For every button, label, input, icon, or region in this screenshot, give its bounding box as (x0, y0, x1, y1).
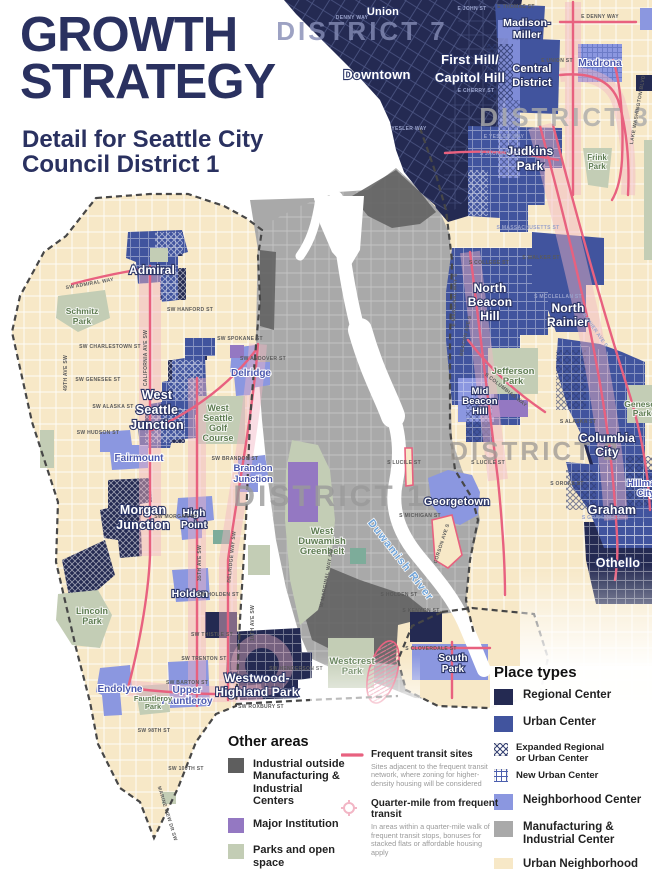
riverview-playfield (248, 545, 270, 575)
first-hill-label-2: Capitol Hill (435, 70, 505, 85)
street-label: SW ALASKA ST (92, 404, 133, 410)
street-label: S KENYON ST (402, 608, 439, 614)
street-label: SW MORGAN ST (154, 514, 198, 520)
street-label: S ALASKA ST (560, 419, 596, 425)
street-label: SW 98TH ST (138, 728, 170, 734)
street-label: DENNY WAY (336, 15, 369, 21)
major-institution-swatch (228, 818, 244, 833)
street-label: E JOHN ST (457, 6, 486, 12)
transit-legend: Frequent transit sites Sites adjacent to… (341, 749, 499, 867)
morgan-label-2: Junction (116, 518, 170, 532)
street-label: S LUCILE ST (387, 460, 421, 466)
fauntleroy-park-label-2: Park (145, 702, 162, 711)
madrona-label: Madrona (578, 57, 622, 69)
street-label: S MASSACHUSETTS ST (497, 225, 560, 231)
quarter-mile-icon (341, 800, 365, 816)
street-label: SW TRENTON ST (181, 656, 226, 662)
brandon-label-2: Junction (233, 474, 273, 485)
expanded-label-2: or Urban Center (516, 753, 588, 764)
street-label: 49TH AVE SW (63, 355, 69, 391)
street-label: SW 100TH ST (168, 766, 204, 772)
street-label: 16TH AVE SW (250, 605, 256, 641)
lincoln-label-1: Lincoln (76, 606, 108, 616)
quarter-mile-desc: In areas within a quarter-mile walk of f… (371, 823, 499, 858)
frink-label-1: Frink (587, 153, 607, 162)
ws-junction-label-1: West (142, 388, 173, 402)
street-label: S LUCILE ST (471, 460, 505, 466)
brandon-label-1: Brandon (233, 463, 272, 474)
ws-junction-label-3: Junction (130, 418, 184, 432)
growth-strategy-poster: DISTRICT 7 DISTRICT 3 DISTRICT 2 DISTRIC… (0, 0, 652, 869)
street-label: E DENNY WAY (581, 14, 619, 20)
legend-item-regional: Regional Center (494, 689, 652, 705)
columbia-city-label-1: Columbia (579, 431, 635, 445)
legend-label: Parks and open space (253, 844, 346, 869)
street-label: S WALKER ST (522, 255, 559, 261)
north-rainier-label-1: North (552, 301, 585, 315)
delridge-label: Delridge (231, 368, 271, 379)
golf-label-4: Course (202, 433, 233, 443)
legend-item-expanded: Expanded Regional or Urban Center (494, 743, 652, 764)
street-label: SW ROXBURY ST (238, 704, 284, 710)
street-label: S MICHIGAN ST (399, 513, 441, 519)
westwood-label-2: Highland Park (215, 685, 298, 699)
legend-item-quarter-mile: Quarter-mile from frequent transit In ar… (341, 798, 499, 858)
street-label: S GRAHAM ST (582, 515, 620, 521)
industrial-label-3: Industrial Centers (253, 783, 303, 807)
street-label: S COLLEGE ST (469, 260, 509, 266)
madison-miller-label-2: Miller (513, 29, 542, 41)
north-beacon-label-3: Hill (480, 309, 499, 323)
frequent-transit-desc: Sites adjacent to the frequent transit n… (371, 763, 499, 789)
transit-line-icon (341, 751, 365, 759)
legend-label: Regional Center (523, 689, 611, 702)
central-district-label-2: District (512, 77, 552, 89)
south-park-label-1: South (438, 653, 467, 664)
schmitz-label-1: Schmitz (66, 306, 99, 316)
industrial-outside-swatch (228, 758, 244, 773)
street-label: SW THISTLE ST (191, 632, 233, 638)
central-district-label-1: Central (512, 63, 551, 75)
legend-item-major-institution: Major Institution (228, 818, 346, 833)
street-label: SW SPOKANE ST (217, 336, 263, 342)
genesee-label-2: Park (633, 408, 652, 418)
columbia-city-label-2: City (595, 445, 619, 459)
expanded-label-1: Expanded Regional (516, 742, 604, 753)
legend-item-neighborhood: Neighborhood Center (494, 794, 652, 810)
legend-label: Urban Neighborhood (523, 858, 638, 869)
frink-label-2: Park (588, 162, 606, 171)
hiawatha-park (150, 248, 168, 262)
street-label: SW GENESEE ST (75, 377, 120, 383)
legend-label: Industrial outside Manufacturing & Indus… (253, 758, 346, 807)
place-types-title: Place types (494, 664, 652, 681)
manufacturing-label-2: Industrial Center (523, 834, 614, 846)
legend-item-new-urban: New Urban Center (494, 769, 652, 782)
golf-label-3: Golf (209, 423, 228, 433)
place-types-legend: Place types Regional Center Urban Center… (494, 664, 652, 869)
first-hill-label-1: First Hill/ (441, 52, 499, 67)
street-label: YESLER WAY (391, 126, 427, 132)
madison-miller-label-1: Madison- (503, 17, 551, 29)
quarter-mile-title: Quarter-mile from frequent transit (371, 798, 499, 821)
high-point-label-2: Point (181, 520, 207, 531)
legend-label: Major Institution (253, 818, 339, 830)
legend-label: Neighborhood Center (523, 794, 641, 807)
legend-item-manufacturing: Manufacturing & Industrial Center (494, 821, 652, 847)
south-park-navy-block (410, 612, 442, 642)
edge-block (640, 8, 652, 30)
legend-label: New Urban Center (516, 769, 598, 782)
street-label: E YESLER WAY (484, 134, 525, 140)
street-label: S HOLDEN ST (381, 592, 418, 598)
district-3-label: DISTRICT 3 (479, 102, 651, 132)
north-beacon-label-2: Beacon (468, 295, 513, 309)
legend-item-urban: Urban Center (494, 716, 652, 732)
schmitz-label-2: Park (73, 316, 92, 326)
mekwamooks-park (40, 430, 54, 468)
urban-center-swatch (494, 716, 513, 732)
street-label: SW BARTON ST (166, 680, 208, 686)
street-label: SW ANDOVER ST (240, 356, 286, 362)
greenbelt-label-3: Greenbelt (300, 546, 345, 557)
judkins-label-2: Park (517, 159, 544, 173)
westwood-label-1: Westwood- (224, 671, 290, 685)
other-areas-legend: Other areas Industrial outside Manufactu… (228, 734, 346, 869)
upper-fauntleroy-label-1: Upper (173, 685, 202, 696)
golf-label-1: West (207, 403, 228, 413)
north-beacon-label-1: North (474, 281, 507, 295)
lake-washington-shore (644, 140, 652, 260)
cemetery-block2 (350, 548, 366, 564)
street-label: 35TH AVE SW (197, 545, 203, 581)
legend-label: Urban Center (523, 716, 596, 729)
street-label: S JACKSON ST (480, 151, 521, 157)
legend-label: Manufacturing & Industrial Center (523, 821, 614, 847)
parks-swatch (228, 844, 244, 859)
street-label: E CHERRY ST (458, 88, 495, 94)
street-label: S ORCAS ST (550, 481, 584, 487)
other-areas-title: Other areas (228, 734, 346, 750)
legend-label: Expanded Regional or Urban Center (516, 743, 604, 764)
south-park-label-2: Park (442, 664, 465, 675)
street-label: E UNION ST (541, 58, 573, 64)
frequent-transit-title: Frequent transit sites (371, 749, 499, 761)
admiral-label: Admiral (129, 263, 175, 277)
street-label: SW BRANDON ST (212, 456, 259, 462)
georgetown-label: Georgetown (424, 496, 490, 508)
street-label: SW HANFORD ST (167, 307, 213, 313)
regional-center-swatch (494, 689, 513, 705)
west-waterway-industrial (260, 250, 276, 330)
street-label: CALIFORNIA AVE SW (143, 330, 149, 386)
golf-label-2: Seattle (203, 413, 233, 423)
ws-junction-label-2: Seattle (136, 403, 178, 417)
street-label: SW HOLDEN ST (197, 592, 239, 598)
street-label: S MCCLELLAN ST (534, 294, 582, 300)
industrial-label-1: Industrial outside (253, 758, 345, 770)
legend-item-parks: Parks and open space (228, 844, 346, 869)
legend-item-industrial-outside: Industrial outside Manufacturing & Indus… (228, 758, 346, 807)
street-label: SW HUDSON ST (77, 430, 120, 436)
legend-item-urban-neighborhood: Urban Neighborhood (494, 858, 652, 869)
union-label: Union (367, 6, 399, 18)
fairmount-label: Fairmount (115, 453, 165, 464)
legend-item-frequent-transit: Frequent transit sites Sites adjacent to… (341, 749, 499, 789)
hillman-city-label-2: City (637, 488, 652, 499)
street-label: E THOMAS ST (497, 4, 534, 10)
mid-beacon-label-3: Hill (472, 406, 488, 417)
downtown-label: Downtown (343, 67, 410, 82)
street-label: S CLOVERDALE ST (405, 646, 456, 652)
lincoln-label-2: Park (82, 616, 103, 626)
jefferson-label-2: Park (503, 376, 524, 387)
street-label: SW CHARLESTOWN ST (79, 344, 141, 350)
manufacturing-label-1: Manufacturing & (523, 821, 614, 833)
industrial-label-2: Manufacturing & (253, 770, 340, 782)
